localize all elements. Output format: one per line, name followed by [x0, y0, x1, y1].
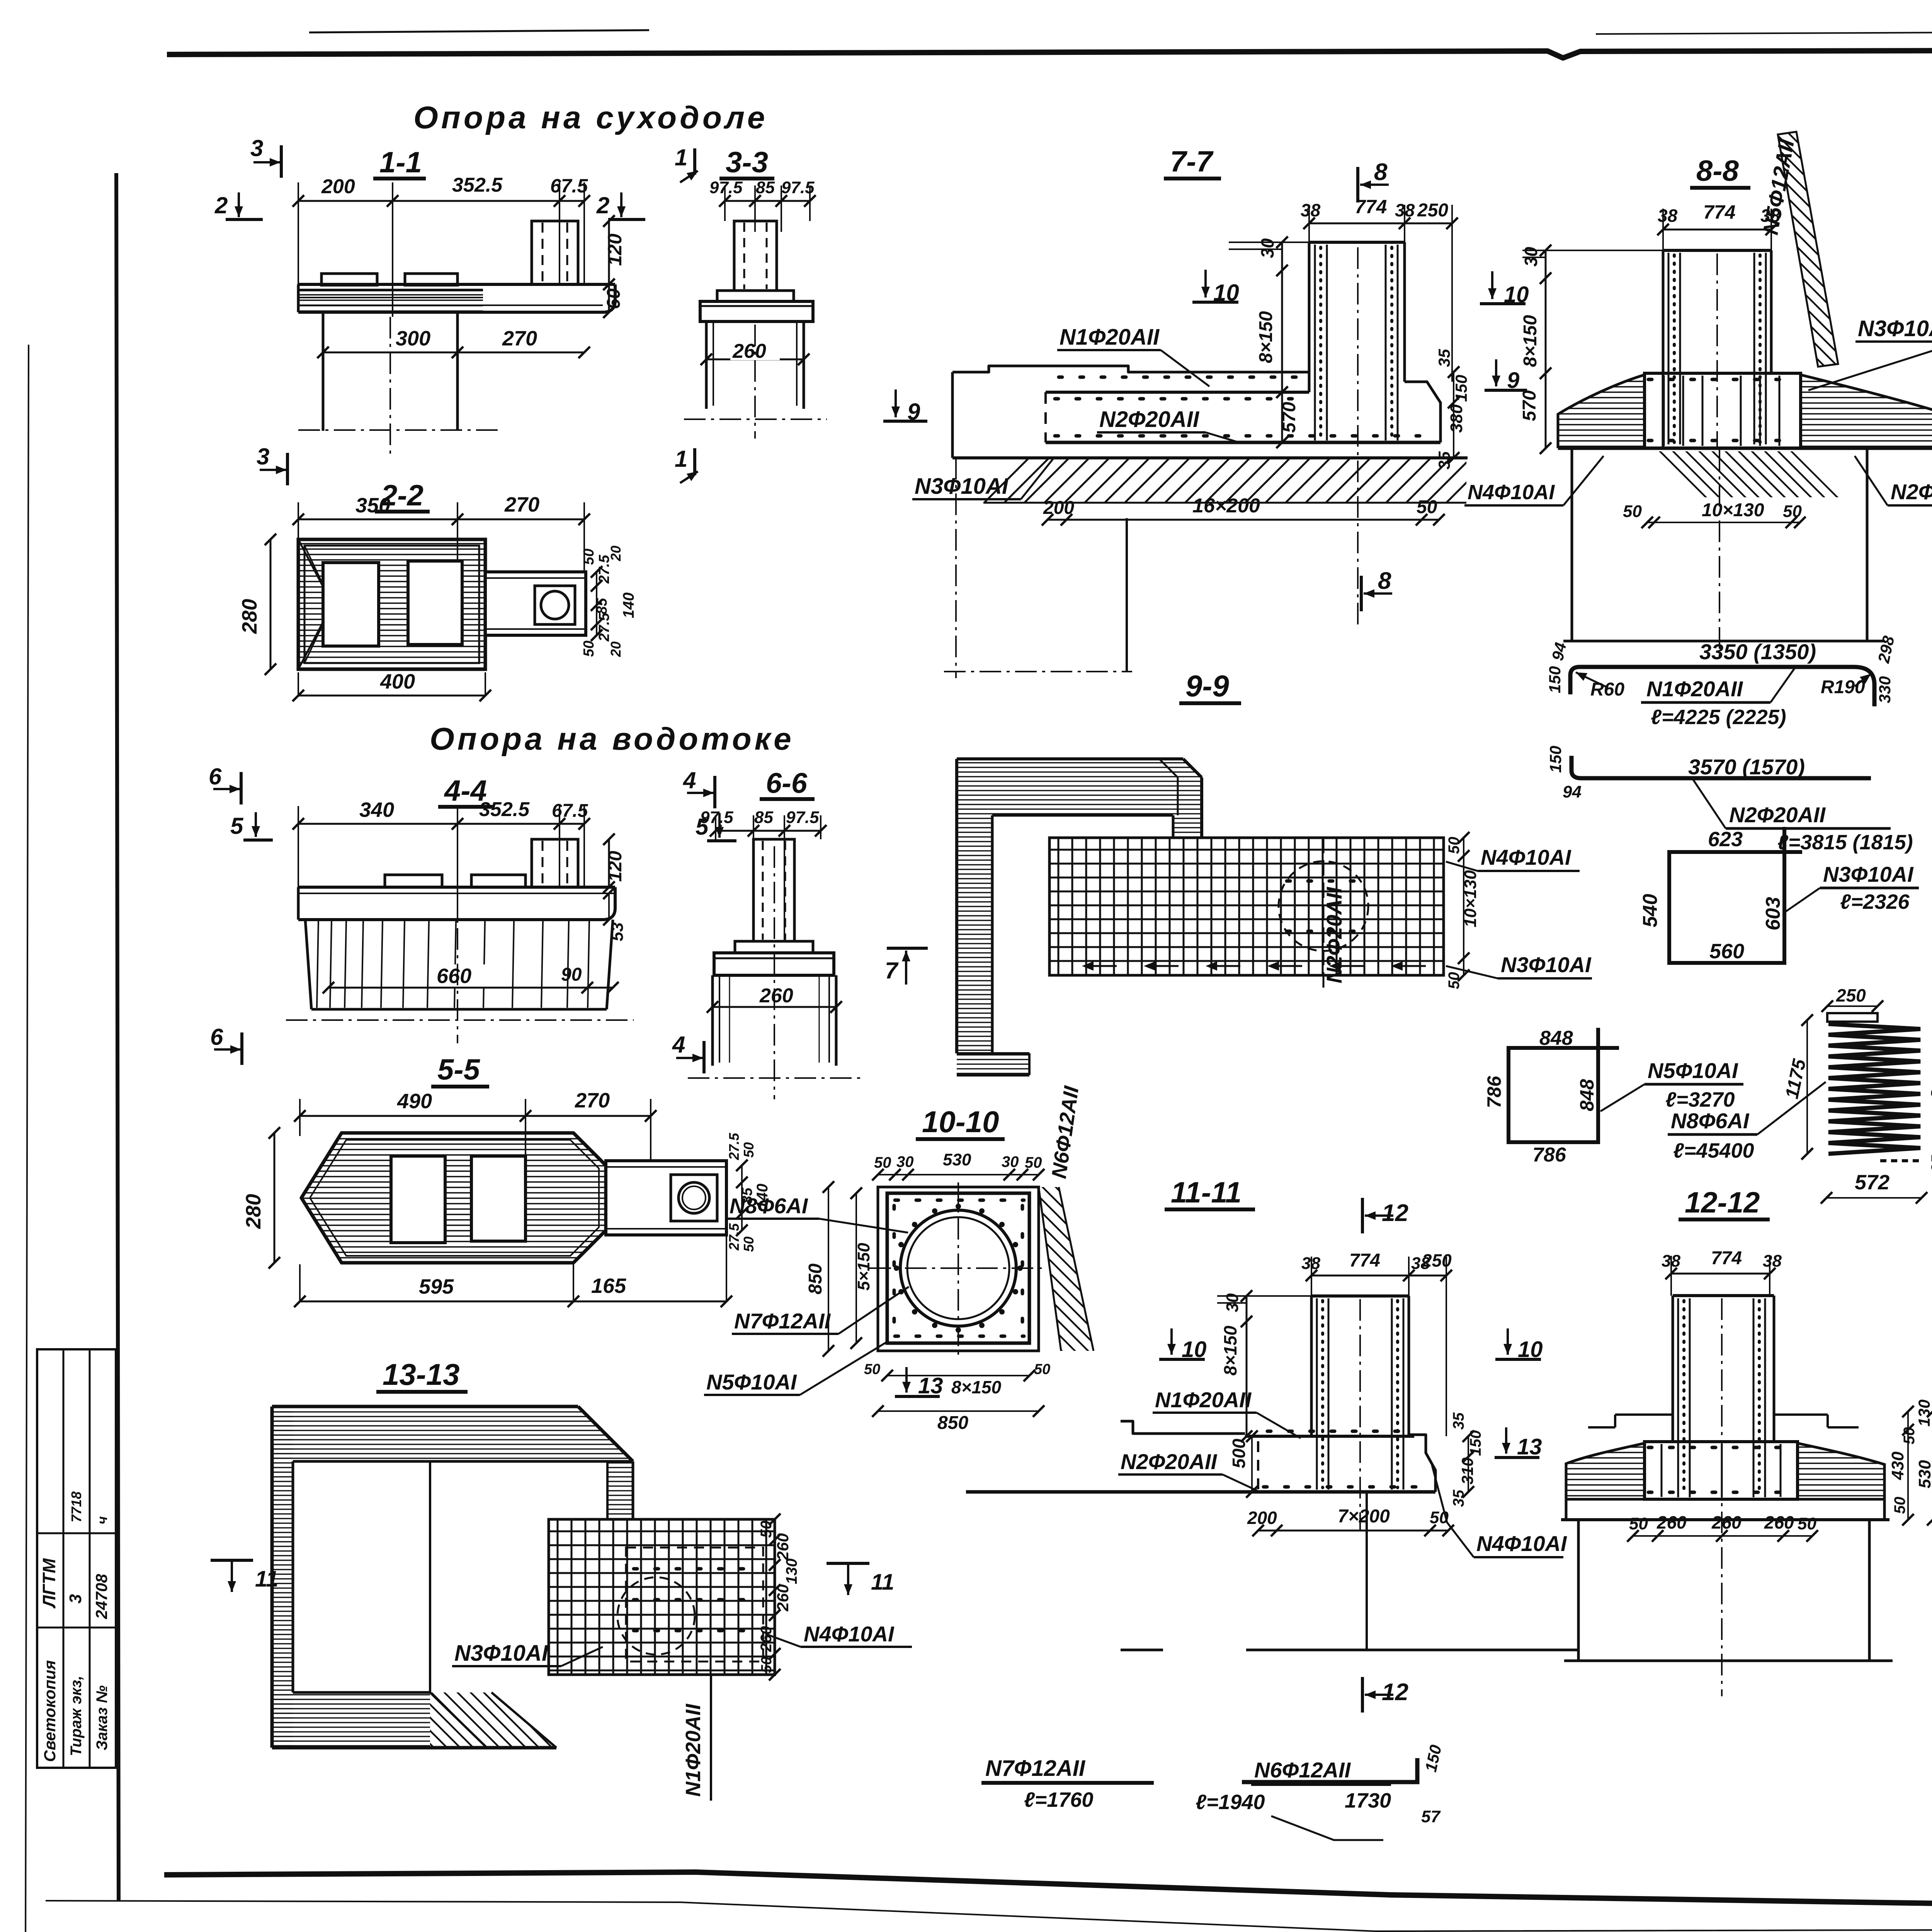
svg-text:200: 200	[321, 175, 355, 198]
svg-text:N1Ф20АII: N1Ф20АII	[1646, 677, 1743, 701]
svg-text:6-6: 6-6	[766, 767, 808, 799]
svg-text:24708: 24708	[92, 1574, 111, 1619]
svg-text:623: 623	[1708, 828, 1743, 851]
svg-text:12: 12	[1382, 1679, 1408, 1706]
svg-text:N3Ф10АI: N3Ф10АI	[915, 474, 1009, 499]
svg-text:11: 11	[255, 1566, 278, 1592]
svg-text:5-5: 5-5	[437, 1053, 481, 1086]
svg-text:270: 270	[575, 1089, 610, 1112]
svg-text:50: 50	[581, 641, 597, 657]
svg-text:50: 50	[864, 1361, 880, 1378]
svg-text:5: 5	[230, 813, 244, 839]
svg-text:1730: 1730	[1345, 1789, 1391, 1812]
svg-text:7×200: 7×200	[1338, 1506, 1390, 1527]
svg-text:7718: 7718	[68, 1492, 84, 1522]
svg-text:20: 20	[608, 546, 624, 561]
svg-text:38: 38	[1301, 200, 1321, 220]
svg-text:97.5: 97.5	[786, 808, 819, 827]
svg-text:11-11: 11-11	[1171, 1176, 1242, 1209]
svg-text:850: 850	[937, 1413, 968, 1433]
svg-text:260: 260	[732, 340, 766, 362]
svg-text:N3Ф10АI: N3Ф10АI	[1823, 862, 1914, 886]
svg-text:50: 50	[1891, 1497, 1908, 1514]
svg-text:3: 3	[250, 135, 263, 161]
svg-text:38: 38	[1760, 206, 1781, 226]
svg-text:8-8: 8-8	[1696, 155, 1739, 187]
svg-text:786: 786	[1483, 1075, 1505, 1108]
svg-text:260: 260	[1656, 1512, 1687, 1532]
svg-text:570: 570	[1279, 402, 1299, 433]
svg-text:N2Ф20АII: N2Ф20АII	[1322, 886, 1346, 983]
svg-text:16×200: 16×200	[1192, 495, 1260, 517]
svg-text:570: 570	[1519, 390, 1540, 421]
svg-text:N2Ф20АII: N2Ф20АII	[1729, 803, 1826, 827]
svg-text:85: 85	[756, 178, 775, 197]
svg-text:30: 30	[1223, 1293, 1242, 1312]
svg-text:12-12: 12-12	[1685, 1186, 1760, 1219]
svg-text:1: 1	[675, 446, 687, 472]
svg-text:50: 50	[1901, 1427, 1918, 1445]
svg-text:400: 400	[380, 670, 415, 693]
svg-text:30: 30	[1257, 238, 1277, 258]
svg-text:85: 85	[594, 598, 610, 614]
svg-text:R60: R60	[1590, 679, 1624, 700]
svg-text:848: 848	[1576, 1079, 1598, 1111]
svg-text:603: 603	[1762, 897, 1784, 930]
svg-text:4: 4	[672, 1032, 685, 1058]
svg-text:50: 50	[874, 1154, 891, 1171]
svg-text:50: 50	[581, 549, 597, 565]
svg-text:ЛГТМ: ЛГТМ	[39, 1558, 59, 1609]
svg-text:130: 130	[783, 1558, 800, 1584]
svg-text:774: 774	[1711, 1248, 1742, 1269]
svg-text:540: 540	[1639, 894, 1662, 927]
svg-text:85: 85	[754, 808, 773, 827]
svg-text:200: 200	[1043, 498, 1074, 518]
svg-text:8: 8	[1374, 159, 1388, 185]
svg-text:N2Ф20АII: N2Ф20АII	[1121, 1449, 1218, 1474]
svg-text:N7Ф12АII: N7Ф12АII	[734, 1309, 831, 1333]
svg-text:774: 774	[1349, 1250, 1380, 1271]
svg-text:50: 50	[1417, 497, 1437, 517]
svg-text:120: 120	[605, 851, 626, 882]
svg-text:ℓ=45400: ℓ=45400	[1673, 1139, 1754, 1162]
svg-text:595: 595	[419, 1275, 454, 1298]
svg-text:Тираж экз,: Тираж экз,	[68, 1676, 85, 1756]
svg-text:8×150: 8×150	[1220, 1325, 1240, 1376]
svg-text:120: 120	[604, 233, 626, 266]
svg-text:50: 50	[1623, 502, 1642, 521]
svg-text:50: 50	[1798, 1514, 1816, 1533]
svg-text:N2Ф20АII: N2Ф20АII	[1891, 480, 1932, 504]
svg-text:35: 35	[1435, 451, 1453, 469]
svg-text:50: 50	[741, 1142, 757, 1158]
svg-text:8×150: 8×150	[951, 1377, 1002, 1397]
svg-text:490: 490	[397, 1090, 432, 1113]
svg-text:N8Ф6АI: N8Ф6АI	[1671, 1109, 1750, 1133]
svg-text:N4Ф10АI: N4Ф10АI	[1468, 481, 1555, 504]
svg-text:6: 6	[209, 764, 222, 789]
svg-text:13: 13	[1517, 1434, 1542, 1459]
svg-text:N7Ф12АII: N7Ф12АII	[985, 1756, 1086, 1781]
svg-text:50: 50	[1034, 1361, 1050, 1378]
svg-text:50: 50	[741, 1236, 757, 1252]
svg-text:260: 260	[759, 985, 793, 1007]
svg-text:200: 200	[1247, 1508, 1277, 1528]
svg-text:50: 50	[1446, 972, 1463, 990]
svg-text:250: 250	[1836, 985, 1866, 1005]
svg-text:560: 560	[1709, 940, 1744, 963]
svg-text:3350 (1350): 3350 (1350)	[1699, 639, 1816, 664]
svg-text:25: 25	[1929, 1155, 1932, 1173]
svg-text:250: 250	[1417, 200, 1448, 221]
svg-text:130: 130	[1915, 1400, 1932, 1427]
svg-text:N1Ф20АII: N1Ф20АII	[682, 1704, 705, 1797]
svg-text:11: 11	[871, 1570, 894, 1595]
svg-text:10×130: 10×130	[1461, 870, 1480, 927]
svg-text:94: 94	[1563, 782, 1582, 801]
svg-text:N8Ф6АI: N8Ф6АI	[730, 1194, 808, 1218]
svg-text:38: 38	[1763, 1252, 1782, 1270]
svg-text:50: 50	[758, 1521, 775, 1538]
svg-text:3-3: 3-3	[726, 146, 768, 179]
svg-text:N1Ф20АII: N1Ф20АII	[1060, 325, 1160, 350]
svg-text:150: 150	[1546, 746, 1565, 773]
svg-text:N4Ф10АI: N4Ф10АI	[804, 1622, 895, 1646]
svg-text:35: 35	[1435, 349, 1453, 367]
svg-text:774: 774	[1355, 196, 1387, 218]
svg-text:ℓ=2326: ℓ=2326	[1840, 890, 1910, 913]
svg-text:340: 340	[359, 798, 394, 821]
svg-text:150: 150	[1452, 375, 1470, 402]
svg-text:12: 12	[1382, 1200, 1408, 1226]
svg-text:27.5: 27.5	[596, 612, 612, 642]
svg-text:N5Ф10АI: N5Ф10АI	[706, 1370, 797, 1394]
svg-text:ℓ=1760: ℓ=1760	[1024, 1788, 1094, 1811]
svg-text:N5Ф10АI: N5Ф10АI	[1648, 1058, 1738, 1083]
svg-text:150: 150	[1467, 1430, 1484, 1456]
svg-text:150: 150	[1546, 666, 1564, 693]
svg-text:30: 30	[1521, 247, 1541, 267]
svg-text:6: 6	[210, 1024, 223, 1050]
svg-text:20: 20	[608, 641, 624, 657]
svg-text:30: 30	[1002, 1153, 1019, 1170]
svg-text:Опора на суходоле: Опора на суходоле	[413, 100, 768, 135]
svg-text:97.5: 97.5	[700, 808, 733, 827]
svg-text:10×130: 10×130	[1702, 500, 1764, 520]
svg-text:N6Ф12АII: N6Ф12АII	[1254, 1758, 1351, 1782]
svg-text:8: 8	[1378, 568, 1391, 594]
svg-text:9-9: 9-9	[1185, 669, 1229, 703]
svg-text:270: 270	[504, 493, 539, 516]
svg-text:N4Ф10АI: N4Ф10АI	[1476, 1531, 1567, 1556]
svg-text:27.5: 27.5	[726, 1133, 742, 1160]
svg-text:2: 2	[214, 192, 228, 218]
svg-text:50: 50	[1783, 502, 1802, 521]
svg-text:140: 140	[620, 592, 637, 618]
svg-text:4: 4	[683, 767, 696, 793]
svg-text:13-13: 13-13	[383, 1357, 460, 1391]
svg-text:786: 786	[1532, 1144, 1566, 1166]
svg-text:260: 260	[758, 1626, 775, 1652]
svg-text:270: 270	[502, 327, 537, 350]
svg-text:330: 330	[1876, 676, 1894, 703]
svg-text:260: 260	[774, 1584, 792, 1612]
svg-text:260: 260	[1711, 1512, 1742, 1532]
svg-text:530: 530	[943, 1150, 971, 1169]
svg-text:Опора на водотоке: Опора на водотоке	[430, 721, 794, 757]
svg-text:260: 260	[774, 1533, 792, 1561]
svg-text:3: 3	[257, 444, 269, 469]
svg-text:27.5: 27.5	[726, 1223, 742, 1251]
svg-text:774: 774	[1703, 201, 1735, 223]
svg-text:67.5: 67.5	[550, 175, 588, 197]
svg-text:38: 38	[1658, 206, 1678, 226]
svg-text:N3Ф10АI: N3Ф10АI	[454, 1641, 549, 1666]
svg-text:R190: R190	[1821, 677, 1865, 697]
svg-text:300: 300	[396, 327, 430, 350]
svg-text:8×150: 8×150	[1256, 311, 1276, 363]
svg-text:352.5: 352.5	[452, 174, 503, 196]
svg-text:250: 250	[1422, 1250, 1452, 1270]
svg-text:N1Ф20АII: N1Ф20АII	[1155, 1388, 1252, 1412]
svg-text:N2Ф20АII: N2Ф20АII	[1099, 407, 1200, 432]
svg-text:57: 57	[1421, 1807, 1441, 1826]
svg-text:260: 260	[1764, 1512, 1794, 1532]
svg-text:280: 280	[238, 599, 261, 634]
svg-text:280: 280	[242, 1194, 265, 1229]
svg-text:ч: ч	[94, 1516, 110, 1524]
svg-text:50: 50	[759, 1657, 775, 1673]
svg-text:67.5: 67.5	[552, 801, 588, 821]
svg-text:30: 30	[896, 1153, 914, 1170]
svg-text:Светокопия: Светокопия	[41, 1660, 59, 1762]
svg-text:165: 165	[591, 1274, 626, 1298]
svg-text:530: 530	[1915, 1460, 1932, 1488]
svg-text:5×150: 5×150	[854, 1243, 873, 1291]
svg-text:3: 3	[66, 1594, 85, 1604]
svg-text:572: 572	[1855, 1171, 1889, 1194]
svg-text:Заказ №: Заказ №	[94, 1685, 111, 1750]
svg-text:50: 50	[1446, 837, 1463, 854]
svg-text:380: 380	[1447, 404, 1466, 433]
svg-text:3570 (1570): 3570 (1570)	[1688, 755, 1805, 779]
svg-text:7-7: 7-7	[1170, 145, 1214, 178]
svg-text:310: 310	[1458, 1458, 1476, 1485]
svg-text:848: 848	[1539, 1027, 1573, 1049]
svg-text:10-10: 10-10	[922, 1105, 999, 1139]
svg-text:1-1: 1-1	[379, 146, 422, 179]
svg-text:7: 7	[885, 957, 899, 983]
svg-text:50: 50	[1025, 1154, 1042, 1171]
svg-text:N3Ф10АII: N3Ф10АII	[1858, 316, 1932, 341]
svg-text:35: 35	[1450, 1412, 1467, 1430]
svg-text:N3Ф10АI: N3Ф10АI	[1501, 952, 1592, 977]
svg-text:ℓ=4225 (2225): ℓ=4225 (2225)	[1651, 706, 1786, 729]
svg-text:94: 94	[1548, 641, 1570, 662]
svg-text:90: 90	[561, 964, 582, 985]
svg-text:1: 1	[675, 145, 687, 170]
svg-text:352.5: 352.5	[479, 798, 530, 821]
svg-text:350: 350	[355, 494, 390, 517]
svg-text:850: 850	[805, 1264, 826, 1294]
svg-text:13: 13	[918, 1373, 943, 1398]
svg-text:97.5: 97.5	[709, 178, 743, 197]
svg-text:ℓ=3270: ℓ=3270	[1665, 1088, 1735, 1111]
svg-text:2: 2	[596, 192, 609, 218]
svg-text:8×150: 8×150	[1520, 315, 1541, 367]
svg-text:35: 35	[1450, 1490, 1467, 1507]
svg-text:N4Ф10АI: N4Ф10АI	[1481, 845, 1571, 869]
svg-text:ℓ=1940: ℓ=1940	[1196, 1791, 1265, 1814]
svg-text:500: 500	[1229, 1439, 1249, 1468]
svg-text:430: 430	[1888, 1451, 1907, 1480]
svg-text:660: 660	[437, 964, 471, 988]
